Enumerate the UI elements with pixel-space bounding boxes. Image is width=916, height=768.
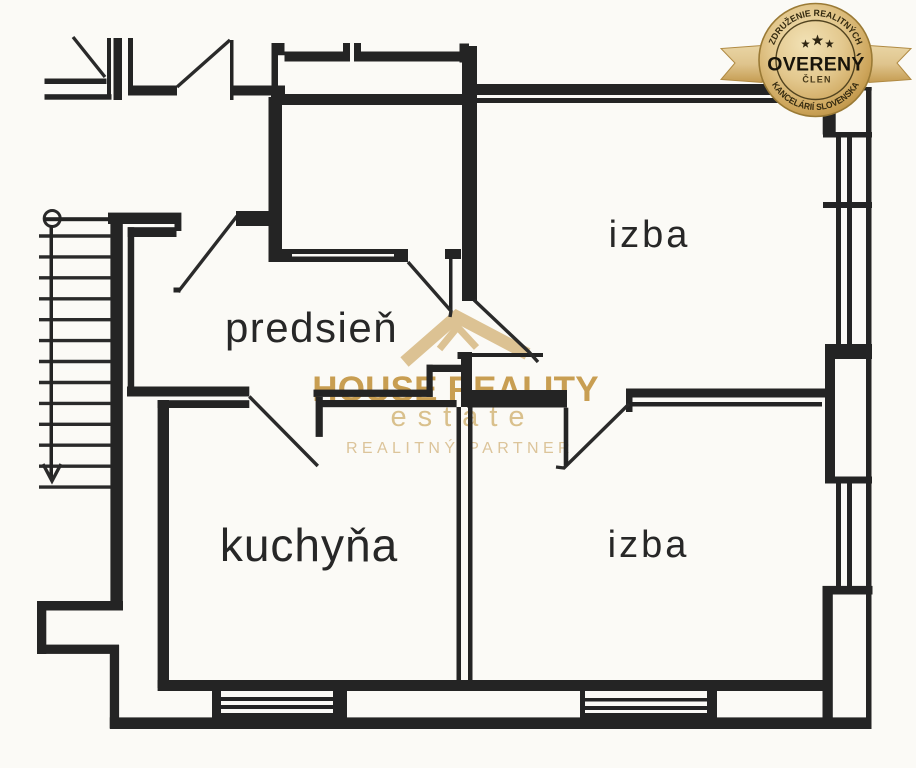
- svg-text:predsieň: predsieň: [225, 304, 398, 351]
- svg-text:kuchyňa: kuchyňa: [220, 519, 398, 571]
- svg-text:ČLEN: ČLEN: [802, 74, 831, 85]
- svg-text:izba: izba: [608, 524, 690, 566]
- svg-text:izba: izba: [609, 214, 691, 256]
- svg-text:OVERENÝ: OVERENÝ: [767, 52, 864, 76]
